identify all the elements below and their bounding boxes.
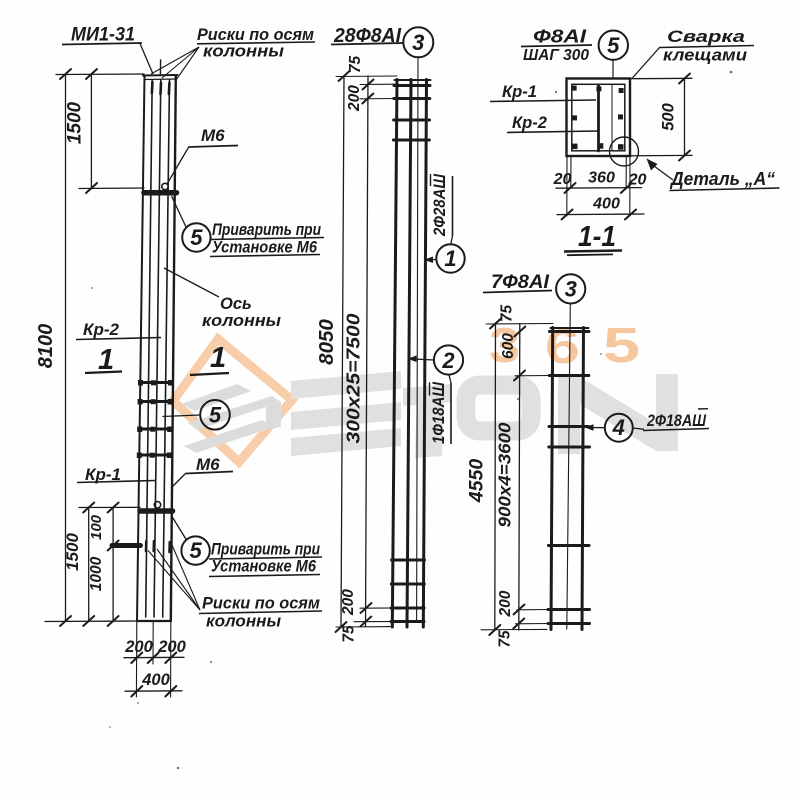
svg-text:колонны: колонны: [202, 312, 281, 330]
svg-text:7Ф8АI: 7Ф8АI: [491, 271, 550, 293]
svg-text:75: 75: [499, 305, 516, 323]
svg-text:5: 5: [190, 225, 203, 250]
svg-text:ШАГ 300: ШАГ 300: [523, 47, 589, 64]
svg-text:МИ1-31: МИ1-31: [71, 24, 135, 46]
svg-text:4: 4: [612, 415, 625, 440]
svg-text:900х4=3600: 900х4=3600: [495, 422, 515, 527]
svg-text:Кр-1: Кр-1: [502, 83, 537, 101]
svg-text:Кр-2: Кр-2: [512, 114, 547, 132]
svg-text:1500: 1500: [65, 101, 86, 144]
svg-text:4550: 4550: [466, 459, 488, 504]
svg-text:Деталь „А“: Деталь „А“: [669, 169, 775, 189]
svg-text:100: 100: [88, 514, 105, 540]
svg-text:5: 5: [603, 319, 640, 373]
svg-text:360: 360: [588, 170, 615, 187]
svg-text:1500: 1500: [63, 533, 82, 571]
svg-text:200: 200: [346, 85, 363, 112]
svg-text:Риски по осям: Риски по осям: [202, 595, 320, 613]
svg-text:200: 200: [497, 590, 514, 617]
svg-text:5: 5: [607, 33, 620, 58]
svg-text:1: 1: [444, 246, 456, 271]
svg-text:5: 5: [209, 403, 222, 428]
svg-text:200: 200: [157, 638, 186, 656]
svg-text:Установке М6: Установке М6: [212, 239, 318, 257]
svg-text:200: 200: [340, 589, 357, 616]
svg-text:Приварить при: Приварить при: [211, 541, 320, 559]
svg-text:Ось: Ось: [220, 295, 252, 313]
svg-text:1: 1: [210, 342, 226, 374]
svg-text:200: 200: [124, 638, 153, 656]
svg-text:5: 5: [189, 538, 202, 563]
svg-text:8100: 8100: [35, 324, 57, 369]
svg-text:2Ф28АШ: 2Ф28АШ: [431, 173, 449, 237]
svg-text:Ф8АI: Ф8АI: [533, 26, 587, 47]
svg-text:колонны: колонны: [203, 43, 284, 61]
svg-text:клещами: клещами: [663, 47, 747, 65]
svg-text:400: 400: [592, 196, 620, 213]
svg-text:1-1: 1-1: [578, 221, 616, 253]
svg-text:3: 3: [412, 30, 424, 55]
svg-text:400: 400: [141, 671, 170, 689]
svg-text:300х25=7500: 300х25=7500: [344, 314, 364, 444]
svg-text:75: 75: [347, 56, 364, 74]
svg-text:500: 500: [660, 102, 678, 130]
svg-text:Риски по осям: Риски по осям: [197, 26, 314, 44]
svg-text:20: 20: [628, 172, 647, 189]
svg-text:2: 2: [441, 348, 455, 373]
svg-text:колонны: колонны: [206, 613, 281, 631]
svg-text:1Ф18АШ: 1Ф18АШ: [430, 381, 448, 444]
svg-text:Кр-2: Кр-2: [83, 320, 119, 339]
svg-text:75: 75: [497, 630, 514, 648]
svg-text:Приварить при: Приварить при: [212, 221, 321, 239]
svg-text:8050: 8050: [315, 319, 338, 365]
svg-text:М6: М6: [201, 126, 225, 145]
svg-text:3: 3: [565, 277, 577, 302]
svg-text:М6: М6: [196, 455, 220, 474]
svg-text:600: 600: [500, 333, 517, 359]
svg-text:2Ф18АШ: 2Ф18АШ: [646, 411, 706, 430]
svg-text:75: 75: [341, 625, 358, 643]
svg-text:Сварка: Сварка: [667, 28, 745, 46]
svg-text:20: 20: [553, 171, 572, 188]
svg-text:1000: 1000: [88, 556, 105, 591]
svg-text:Установке М6: Установке М6: [211, 558, 317, 576]
